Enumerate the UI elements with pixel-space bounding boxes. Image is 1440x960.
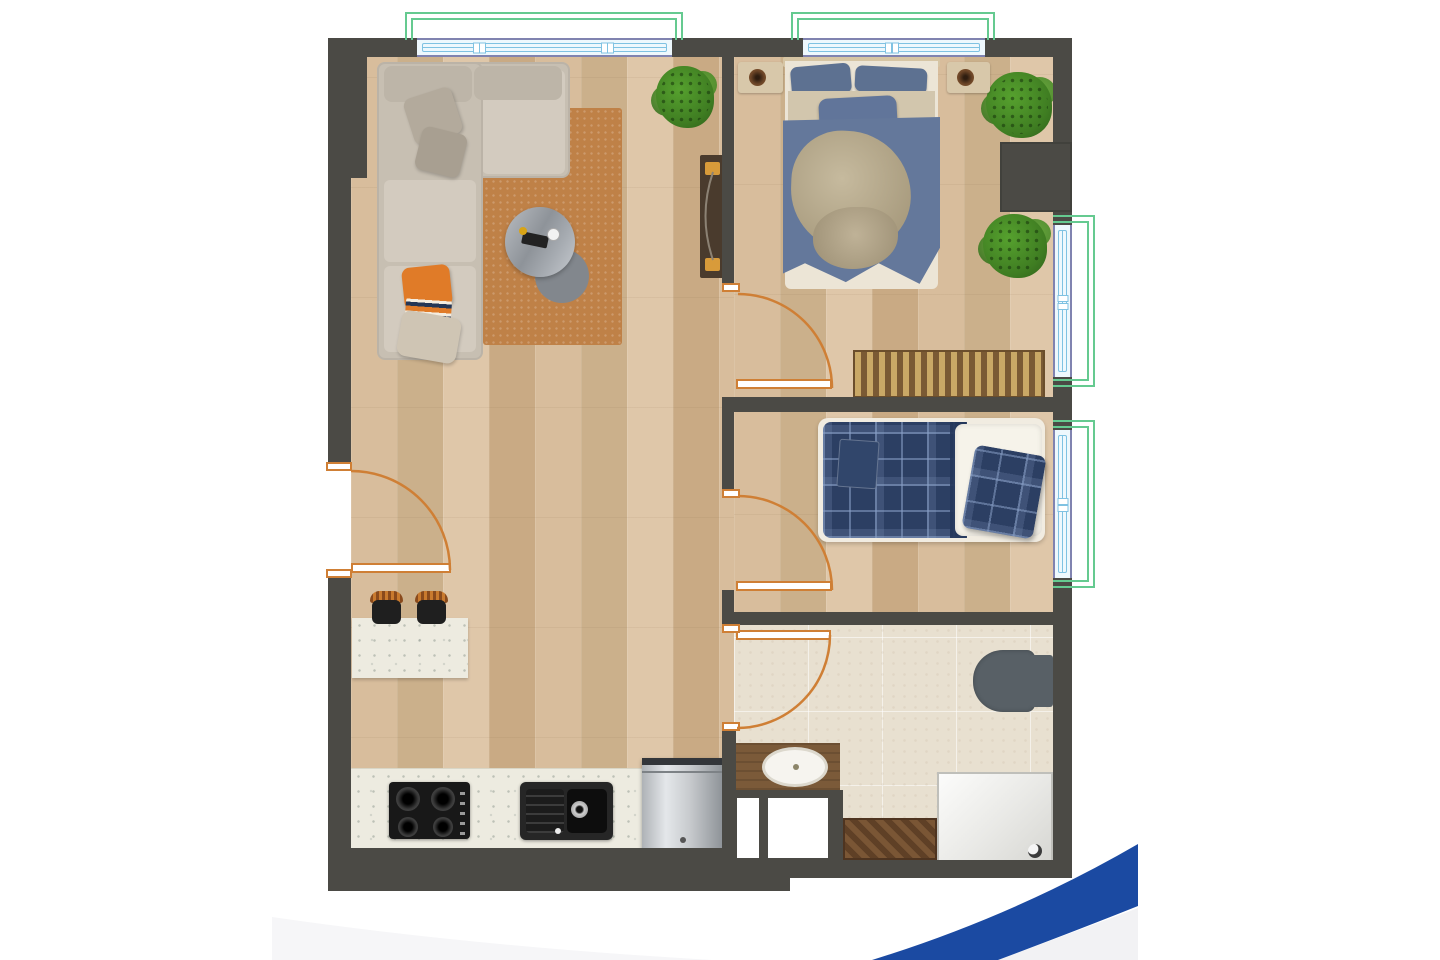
window-bedroom-top	[803, 38, 985, 57]
wall-left-upper	[328, 178, 351, 470]
shower-drain	[1028, 844, 1042, 858]
fridge	[642, 758, 722, 852]
window-mullion	[892, 42, 899, 53]
window-mullion	[607, 42, 614, 53]
entry-door-opening	[328, 471, 351, 571]
stool-seat	[417, 600, 446, 624]
plant-texture	[659, 70, 710, 125]
window-bedroom-right	[1053, 225, 1072, 377]
entry-door-jamb-top	[326, 462, 352, 471]
lamp-left	[749, 69, 766, 86]
cooktop-knobs	[460, 789, 465, 835]
fridge-logo-dot	[680, 837, 686, 843]
tv-speaker-bottom	[705, 258, 720, 271]
plant-living-room	[656, 66, 714, 128]
bath-wood-mat	[843, 818, 937, 860]
wall-hall-upper	[722, 57, 734, 290]
window-mullion	[1057, 498, 1068, 505]
wall-divider-bathroom	[722, 612, 1053, 625]
single-bedroom-door-jamb	[722, 489, 740, 498]
sink-drain	[793, 764, 799, 770]
single-bed-pillow-plaid	[961, 444, 1046, 539]
sofa-back-cushion-2	[474, 66, 562, 100]
table-decor-cup	[547, 228, 560, 241]
wall-left-lower	[328, 572, 351, 848]
single-bed	[818, 418, 1045, 542]
floor-plan-page	[0, 0, 1440, 960]
double-bed	[783, 57, 940, 290]
table-decor-yellow	[519, 227, 527, 235]
wardrobe-recess-block	[1000, 142, 1072, 212]
kitchen-island	[352, 618, 468, 678]
window-single-bedroom	[1053, 430, 1072, 578]
sink-drainboard	[526, 789, 564, 833]
wall-right-lower	[1053, 578, 1072, 878]
window-mullion	[1057, 505, 1068, 512]
window-frame-living	[405, 12, 683, 40]
sink-dot	[555, 828, 561, 834]
bar-stool-2	[415, 591, 448, 625]
window-frame-inner	[797, 18, 989, 40]
window-mullion	[1057, 303, 1068, 310]
bathroom-door-jamb-bottom	[722, 722, 740, 731]
wall-bottom-right	[722, 860, 1072, 878]
window-frame-inner	[411, 18, 677, 40]
wall-left-pillar	[328, 38, 367, 178]
wall-bottom-left	[328, 848, 790, 891]
window-living	[417, 38, 672, 57]
lamp-right	[957, 69, 974, 86]
entry-door-jamb-bottom	[326, 569, 352, 578]
utility-niche-1	[737, 798, 759, 858]
bedroom-door-leaf	[736, 379, 832, 389]
bathroom-door-leaf	[736, 630, 831, 640]
burner	[433, 817, 453, 837]
bedroom-door-jamb	[722, 283, 740, 292]
stool-seat	[372, 600, 401, 624]
gray-swoosh-left	[272, 917, 712, 960]
slatted-dresser	[853, 350, 1045, 398]
cooktop	[389, 782, 470, 839]
wall-hall-mid	[722, 412, 734, 497]
sink-faucet	[571, 801, 588, 818]
entry-door-leaf	[351, 563, 451, 573]
wall-top-right	[985, 38, 1072, 57]
fridge-handle-line	[642, 771, 722, 773]
burner	[431, 787, 455, 811]
wall-top-middle	[672, 38, 803, 57]
plant-texture	[990, 76, 1048, 134]
window-frame-bedroom-top	[791, 12, 995, 40]
utility-niche-2	[768, 798, 828, 858]
toilet-bowl	[973, 650, 1035, 712]
wall-divider-bedrooms	[722, 397, 1053, 412]
window-mullion	[1057, 295, 1068, 302]
window-glazing	[422, 43, 667, 52]
plant-bedroom-middle	[983, 214, 1047, 278]
window-mullion	[479, 42, 486, 53]
burner	[396, 787, 420, 811]
single-bedroom-door-leaf	[736, 581, 832, 591]
tv-speaker-top	[705, 162, 720, 175]
bar-stool-1	[370, 591, 403, 625]
sofa-seat-cushion-1	[384, 180, 476, 262]
toilet-tank	[1030, 655, 1053, 707]
gray-swoosh-corner	[998, 908, 1138, 960]
plant-texture	[987, 218, 1043, 274]
kitchen-sink	[520, 782, 613, 840]
bathroom-door-jamb-top	[722, 624, 740, 633]
plant-bedroom-top	[986, 72, 1052, 138]
burner	[398, 817, 418, 837]
window-mullion	[885, 42, 892, 53]
single-bed-folded-blanket	[836, 439, 879, 490]
